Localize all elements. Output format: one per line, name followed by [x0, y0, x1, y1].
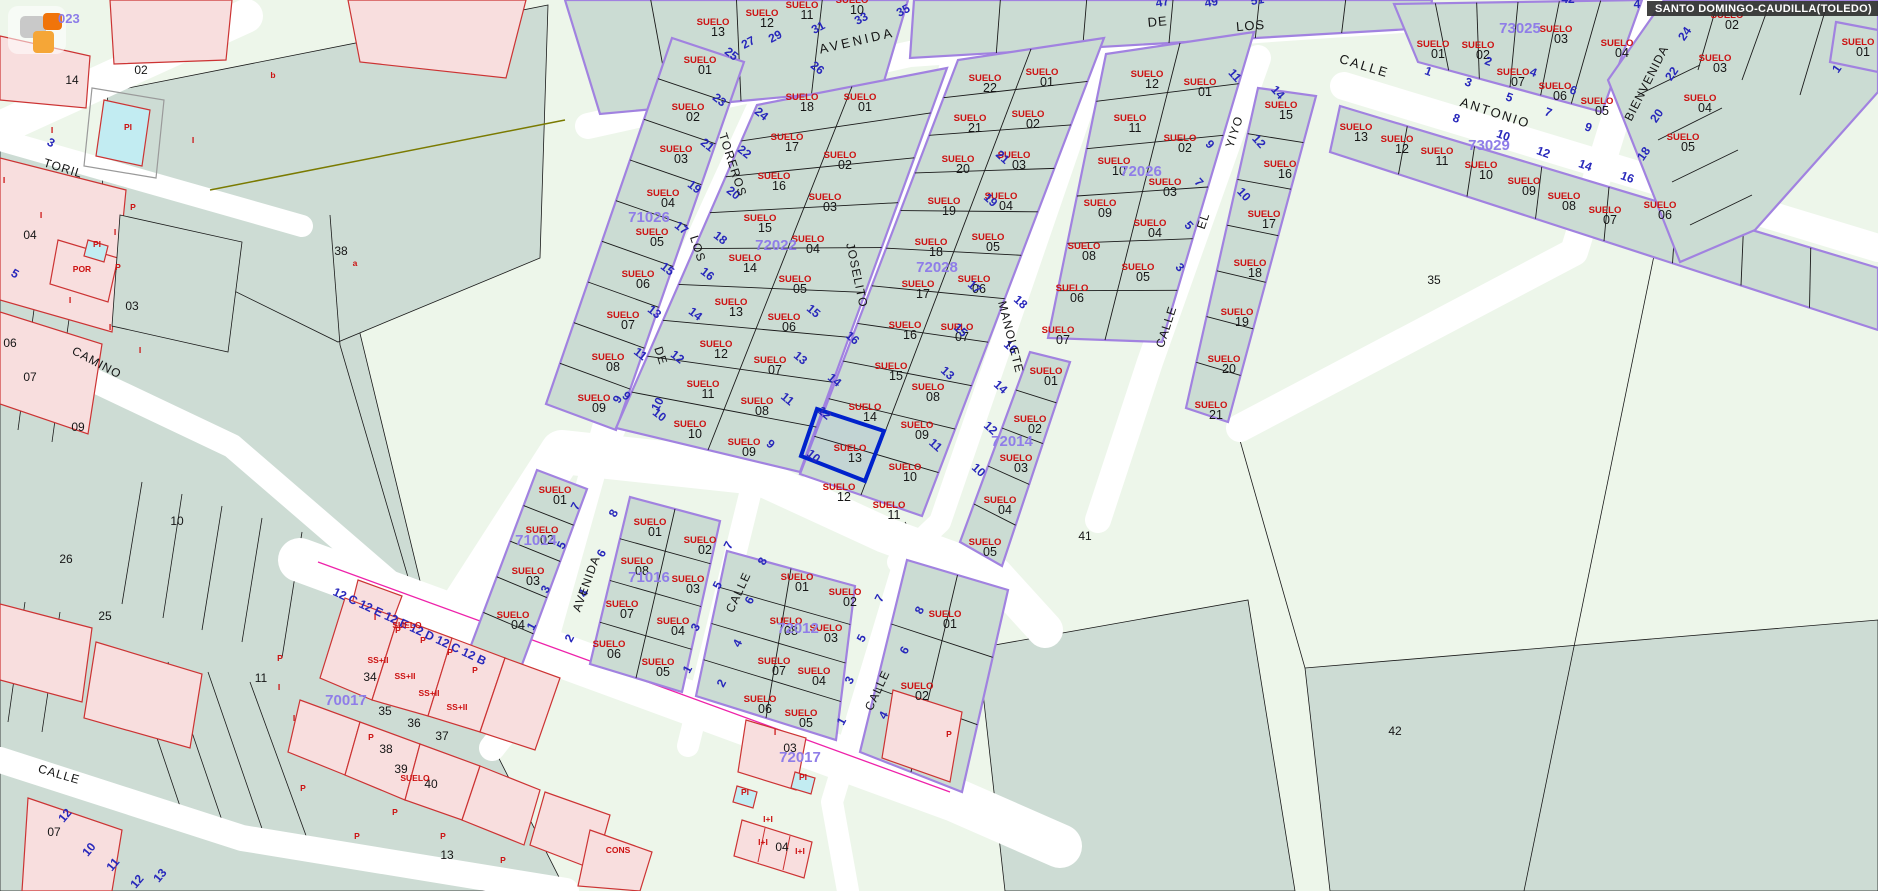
parcel-label-number[interactable]: 19 [1235, 315, 1249, 329]
map-annotation: 07 [23, 370, 37, 384]
map-annotation: I [69, 295, 71, 305]
parcel-label-number[interactable]: 01 [1431, 47, 1445, 61]
block-id-label[interactable]: 72026 [1120, 163, 1162, 180]
parcel-label-number[interactable]: 01 [1198, 85, 1212, 99]
parcel-label-number[interactable]: 20 [956, 162, 970, 176]
map-annotation: 36 [407, 716, 421, 730]
parcel-label-number[interactable]: 03 [1554, 32, 1568, 46]
parcel-label-number[interactable]: 14 [743, 261, 757, 275]
map-annotation: SS+II [446, 702, 467, 712]
parcel-label-number[interactable]: 08 [926, 390, 940, 404]
parcel-label-number[interactable]: 21 [968, 121, 982, 135]
map-annotation: SUELO [400, 773, 430, 783]
map-annotation: P [472, 665, 478, 675]
map-annotation: P [277, 653, 283, 663]
block-id-label[interactable]: 72012 [777, 620, 819, 637]
parcel-label-number[interactable]: 07 [1511, 75, 1525, 89]
map-annotation: CONS [606, 845, 631, 855]
map-annotation: I [293, 713, 295, 723]
parcel-label-number[interactable]: 01 [648, 525, 662, 539]
parcel-label-number[interactable]: 21 [1209, 408, 1223, 422]
map-annotation: I+I [795, 846, 805, 856]
map-annotation: 26 [59, 552, 73, 566]
parcel-label-number[interactable]: 09 [1098, 206, 1112, 220]
map-annotation: SS+II [418, 688, 439, 698]
map-annotation: b [270, 70, 275, 80]
parcel-label-number[interactable]: 07 [1603, 213, 1617, 227]
parcel-label-number[interactable]: 07 [1056, 333, 1070, 347]
parcel-label-number[interactable]: 18 [929, 245, 943, 259]
parcel-label-number[interactable]: 03 [686, 582, 700, 596]
parcel-label-number[interactable]: 03 [823, 200, 837, 214]
parcel-label-number[interactable]: 04 [1615, 46, 1629, 60]
municipality-title-bar: SANTO DOMINGO-CAUDILLA(TOLEDO) [1647, 1, 1878, 16]
parcel-label-number[interactable]: 10 [688, 427, 702, 441]
map-annotation: 03 [125, 299, 139, 313]
parcel-label-number[interactable]: 09 [1522, 184, 1536, 198]
map-annotation: I [278, 682, 280, 692]
block-id-label[interactable]: 72014 [991, 433, 1033, 450]
parcel-label-number[interactable]: 15 [758, 221, 772, 235]
parcel-label-number[interactable]: 05 [983, 545, 997, 559]
parcel-label-number[interactable]: 01 [943, 617, 957, 631]
parcel-label-number[interactable]: 04 [999, 199, 1013, 213]
map-annotation: 42 [1388, 724, 1402, 738]
parcel-label-number[interactable]: 03 [1012, 158, 1026, 172]
block-id-label[interactable]: 70017 [325, 692, 367, 709]
parcel-label-number[interactable]: 04 [998, 503, 1012, 517]
parcel-label-number[interactable]: 05 [793, 282, 807, 296]
map-annotation: 34 [363, 670, 377, 684]
map-annotation: 02 [134, 63, 148, 77]
parcel-label-number[interactable]: 07 [621, 318, 635, 332]
parcel-label-number[interactable]: 03 [1014, 461, 1028, 475]
map-annotation: a [353, 258, 358, 268]
parcel-label-number[interactable]: 01 [858, 100, 872, 114]
parcel-label-number[interactable]: 06 [758, 702, 772, 716]
parcel-label-number[interactable]: 02 [686, 110, 700, 124]
map-annotation: I [109, 322, 111, 332]
map-annotation: I [374, 612, 376, 622]
parcel-label-number[interactable]: 14 [863, 410, 877, 424]
parcel-label-number[interactable]: 16 [772, 179, 786, 193]
parcel-label-number[interactable]: 07 [768, 363, 782, 377]
parcel-label-number[interactable]: 12 [714, 347, 728, 361]
parcel-label-number[interactable]: 07 [772, 664, 786, 678]
street-number: 4 [1634, 0, 1641, 11]
block-id-label[interactable]: 71016 [628, 569, 670, 586]
map-annotation: P [354, 831, 360, 841]
parcel-label-number[interactable]: 13 [1354, 130, 1368, 144]
map-annotation: 04 [23, 228, 37, 242]
field-parcel-42[interactable] [1305, 620, 1878, 891]
parcel-label-number[interactable]: 13 [729, 305, 743, 319]
parcel-label-number[interactable]: 12 [760, 16, 774, 30]
parcel-label-number[interactable]: 04 [812, 674, 826, 688]
map-annotation: I+I [763, 814, 773, 824]
parcel-label-number[interactable]: 20 [1222, 362, 1236, 376]
parcel-label-number[interactable]: 05 [986, 240, 1000, 254]
parcel-label-number[interactable]: 08 [1562, 199, 1576, 213]
parcel-label-number[interactable]: 08 [755, 404, 769, 418]
street-number: 42 [1561, 0, 1575, 6]
parcel-label-number[interactable]: 08 [1082, 249, 1096, 263]
map-annotation: P [130, 202, 136, 212]
parcel-label-number[interactable]: 11 [888, 508, 901, 522]
map-annotation: 09 [71, 420, 85, 434]
municipality-name: SANTO DOMINGO-CAUDILLA(TOLEDO) [1655, 3, 1872, 15]
parcel-label-number[interactable]: 22 [983, 81, 997, 95]
parcel-label-number[interactable]: 05 [1595, 104, 1609, 118]
parcel-label-number[interactable]: 10 [903, 470, 917, 484]
parcel-label-number[interactable]: 15 [889, 369, 903, 383]
block-id-label[interactable]: 72022 [755, 237, 797, 254]
map-annotation: I [192, 135, 194, 145]
parcel-label-number[interactable]: 04 [511, 618, 525, 632]
parcel-label-number[interactable]: 06 [1553, 89, 1567, 103]
map-annotation: 35 [378, 704, 392, 718]
parcel-label-number[interactable]: 04 [1148, 226, 1162, 240]
parcel-label-number[interactable]: 19 [942, 204, 956, 218]
map-annotation: 13 [440, 848, 454, 862]
map-annotation: POR [73, 264, 91, 274]
map-annotation: 35 [1427, 273, 1441, 287]
parcel-label-number[interactable]: 03 [1163, 185, 1177, 199]
map-annotation: 14 [65, 73, 79, 87]
parcel-label-number[interactable]: 03 [824, 631, 838, 645]
block-id-label[interactable]: 72028 [916, 259, 958, 276]
map-annotation: P [368, 732, 374, 742]
parcel-label-number[interactable]: 11 [801, 8, 814, 22]
map-annotation: SS+II [394, 671, 415, 681]
map-annotation: P [500, 855, 506, 865]
parcel-label-number[interactable]: 07 [620, 607, 634, 621]
parcel-label-number[interactable]: 05 [1681, 140, 1695, 154]
parcel-label-number[interactable]: 04 [806, 242, 820, 256]
parcel-label-number[interactable]: 05 [656, 665, 670, 679]
map-annotation: 38 [379, 742, 393, 756]
parcel-label-number[interactable]: 13 [711, 25, 725, 39]
parcel-label-number[interactable]: 03 [674, 152, 688, 166]
map-annotation: P [115, 262, 121, 272]
map-annotation: 04 [775, 840, 789, 854]
parcel-label-number[interactable]: 18 [800, 100, 814, 114]
parcel-label-number[interactable]: 17 [785, 140, 799, 154]
map-annotation: SUELO [392, 620, 422, 630]
block-id-label[interactable]: 71026 [628, 209, 670, 226]
app-logo-orange-shape[interactable] [33, 31, 54, 53]
parcel-label-number[interactable]: 18 [1248, 266, 1262, 280]
parcel-label-number[interactable]: 01 [698, 63, 712, 77]
parcel-label-number[interactable]: 02 [1178, 141, 1192, 155]
parcel-label-number[interactable]: 16 [1278, 167, 1292, 181]
parcel-label-number[interactable]: 08 [606, 360, 620, 374]
map-annotation: 10 [170, 514, 184, 528]
partial-block-id-label: 023 [58, 11, 80, 26]
block-id-label[interactable]: 73029 [1468, 137, 1510, 154]
street-name-label: LOS [1236, 17, 1266, 34]
parcel-label-number[interactable]: 03 [526, 574, 540, 588]
map-annotation: PI [124, 122, 132, 132]
parcel-label-number[interactable]: 05 [650, 235, 664, 249]
parcel-label-number[interactable]: 12 [1145, 77, 1159, 91]
map-annotation: I+I [758, 837, 768, 847]
map-annotation: I [51, 125, 53, 135]
map-annotation: 38 [334, 244, 348, 258]
parcel-label-number[interactable]: 02 [698, 543, 712, 557]
parcel-label-number[interactable]: 06 [1070, 291, 1084, 305]
parcel-label-number[interactable]: 12 [837, 490, 851, 504]
map-annotation: 37 [435, 729, 449, 743]
map-annotation: PI [741, 787, 749, 797]
parcel-label-number[interactable]: 17 [916, 287, 930, 301]
parcel-label-number[interactable]: 09 [742, 445, 756, 459]
map-annotation: PI [93, 239, 101, 249]
cadastral-map-view: SUELO13SUELO12SUELO11SUELO10SUELO01SUELO… [0, 0, 1878, 891]
parcel-label-number[interactable]: 04 [661, 196, 675, 210]
parcel-label-number[interactable]: 13 [848, 451, 862, 465]
parcel-label-number[interactable]: 09 [915, 428, 929, 442]
parcel-label-number[interactable]: 02 [915, 689, 929, 703]
parcel-label-number[interactable]: 11 [1436, 154, 1449, 168]
block-id-label[interactable]: 73025 [1499, 20, 1541, 37]
parcel-label-number[interactable]: 06 [782, 320, 796, 334]
map-annotation: SS+II [367, 655, 388, 665]
parcel-label-number[interactable]: 01 [795, 580, 809, 594]
parcel-label-number[interactable]: 10 [1479, 168, 1493, 182]
map-annotation: I [40, 210, 42, 220]
map-annotation: I [114, 227, 116, 237]
parcel-label-number[interactable]: 02 [838, 158, 852, 172]
map-annotation: P [447, 647, 453, 657]
map-canvas[interactable]: SUELO13SUELO12SUELO11SUELO10SUELO01SUELO… [0, 0, 1878, 891]
parcel-label-number[interactable]: 01 [1856, 45, 1870, 59]
map-annotation: P [300, 783, 306, 793]
map-annotation: P [392, 807, 398, 817]
parcel-label-number[interactable]: 17 [1262, 217, 1276, 231]
parcel-label-number[interactable]: 03 [1713, 61, 1727, 75]
map-annotation: 11 [255, 671, 268, 685]
block-id-label[interactable]: 71014 [515, 532, 557, 549]
map-annotation: 41 [1078, 529, 1092, 543]
parcel-label-number[interactable]: 09 [592, 401, 606, 415]
parcel-label-number[interactable]: 12 [1395, 142, 1409, 156]
parcel-label-number[interactable]: 01 [1044, 374, 1058, 388]
parcel-label-number[interactable]: 06 [1658, 208, 1672, 222]
parcel-label-number[interactable]: 01 [1040, 75, 1054, 89]
map-annotation: 06 [3, 336, 17, 350]
map-annotation: P [440, 831, 446, 841]
map-annotation: 03 [783, 741, 797, 755]
parcel-label-number[interactable]: 06 [636, 277, 650, 291]
map-annotation: 07 [47, 825, 61, 839]
map-annotation: 25 [98, 609, 112, 623]
map-annotation: P [420, 635, 426, 645]
map-annotation: P [946, 729, 952, 739]
parcel-label-number[interactable]: 04 [1698, 101, 1712, 115]
parcel-label-number[interactable]: 11 [1129, 121, 1142, 135]
parcel-label-number[interactable]: 04 [671, 624, 685, 638]
map-annotation: I [774, 727, 776, 737]
parcel-label-number[interactable]: 06 [607, 647, 621, 661]
street-name-label: DE [1147, 13, 1168, 30]
parcel-label-number[interactable]: 01 [553, 493, 567, 507]
parcel-label-number[interactable]: 15 [1279, 108, 1293, 122]
parcel-label-number[interactable]: 16 [903, 328, 917, 342]
map-annotation: PI [799, 772, 807, 782]
map-annotation: I [139, 345, 141, 355]
parcel-label-number[interactable]: 11 [702, 387, 715, 401]
parcel-label-number[interactable]: 05 [799, 716, 813, 730]
parcel-label-number[interactable]: 02 [843, 595, 857, 609]
parcel-label-number[interactable]: 02 [1026, 117, 1040, 131]
map-annotation: I [3, 175, 5, 185]
parcel-label-number[interactable]: 02 [1725, 18, 1739, 32]
parcel-label-number[interactable]: 05 [1136, 270, 1150, 284]
